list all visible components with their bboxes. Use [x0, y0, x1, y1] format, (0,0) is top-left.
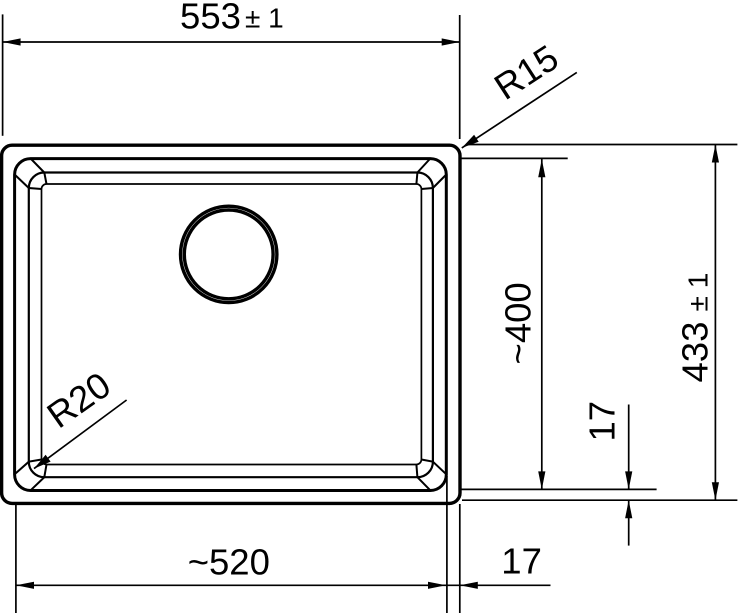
svg-text:~520: ~520	[188, 542, 270, 583]
svg-text:± 1: ± 1	[245, 3, 284, 34]
svg-text:17: 17	[582, 401, 623, 442]
svg-text:R15: R15	[487, 37, 565, 108]
svg-text:553: 553	[180, 0, 241, 36]
svg-text:~400: ~400	[498, 282, 539, 364]
svg-text:17: 17	[501, 541, 542, 582]
svg-text:R20: R20	[40, 364, 118, 436]
svg-text:433 ± 1: 433 ± 1	[675, 273, 716, 383]
